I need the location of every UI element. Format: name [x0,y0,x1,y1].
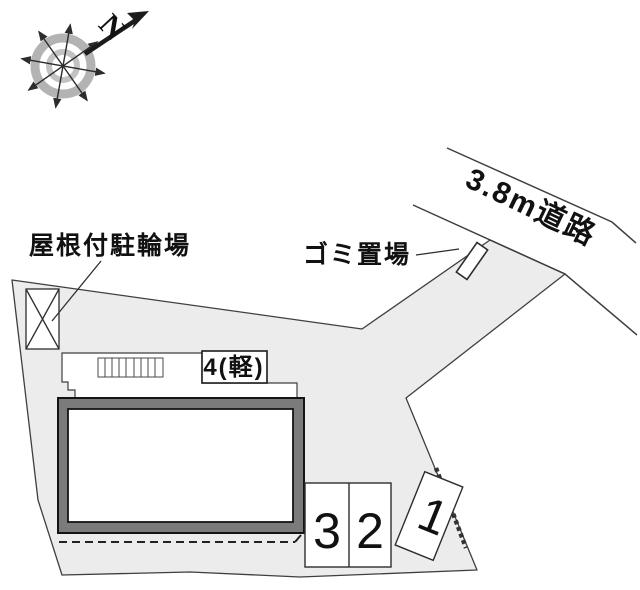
parking-space-3-label: 3 [313,503,341,559]
building-interior [68,409,293,522]
north-label: N [92,7,133,47]
compass-rose: N [22,7,149,108]
site-plan-page: 3.8m道路 4(軽) 3 2 1 [0,0,640,590]
garbage-area-label: ゴミ置場 [303,240,411,269]
bike-rack [98,358,163,377]
garbage-leader-line [416,249,459,255]
site-plan-svg: 3.8m道路 4(軽) 3 2 1 [0,0,640,590]
covered-bicycle-parking-label: 屋根付駐輪場 [29,231,191,260]
parking-space-4-label: 4(軽) [203,354,264,381]
parking-space-2-label: 2 [356,503,384,559]
